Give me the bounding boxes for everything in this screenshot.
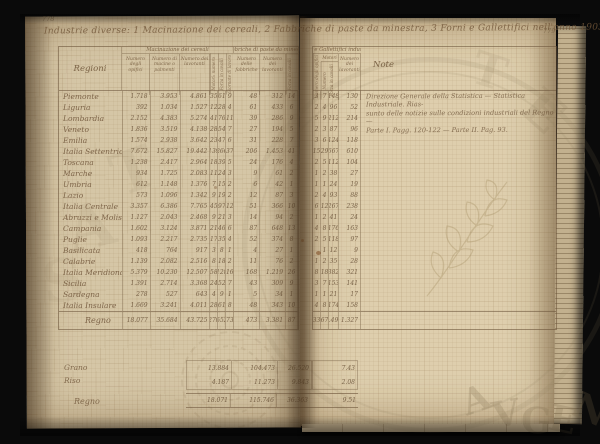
table-cell: 3.953 bbox=[151, 91, 181, 102]
table-cell: 8 bbox=[210, 256, 218, 267]
table-cell: 52 bbox=[234, 234, 260, 245]
table-cell: 46 bbox=[218, 223, 226, 234]
table-row: 1129 bbox=[313, 245, 556, 256]
left-table: RegioniMacinazione dei cerealiFabbriche … bbox=[58, 46, 299, 330]
table-cell: 392 bbox=[123, 102, 151, 113]
summary-cell: 9.51 bbox=[312, 393, 358, 408]
table-cell: 1.238 bbox=[123, 157, 151, 168]
table-cell: 35 bbox=[329, 256, 339, 267]
note-line: Direzione Generale della Statistica — St… bbox=[366, 91, 560, 109]
table-cell: 764 bbox=[151, 245, 181, 256]
table-cell: 24 bbox=[329, 179, 339, 190]
table-row: Marche9341.7252.083112439612 bbox=[59, 168, 298, 179]
table-cell: 41 bbox=[210, 113, 218, 124]
summary-right-box: 7.43 2.08 9.51 bbox=[312, 360, 358, 390]
table-cell: 14 bbox=[234, 212, 260, 223]
table-row: 2511897 bbox=[313, 234, 556, 245]
table-cell: 4 bbox=[226, 102, 234, 113]
note-cell bbox=[361, 146, 556, 157]
table-cell: 610 bbox=[339, 146, 361, 157]
table-row: 37153141 bbox=[313, 278, 556, 289]
table-cell: 2.082 bbox=[151, 256, 181, 267]
table-row: Lazio5731.0961.342919212873 bbox=[59, 190, 298, 201]
column-header: Numero delle fabbriche bbox=[234, 54, 260, 95]
table-cell: 1.453 bbox=[260, 146, 286, 157]
table-cell: 5.274 bbox=[181, 113, 211, 124]
region-label: Lombardia bbox=[59, 113, 123, 124]
table-row: Italia Centrale3.3576.3867.7654597125136… bbox=[59, 201, 298, 212]
table-cell: 54 bbox=[218, 124, 226, 135]
table-cell: 48 bbox=[234, 91, 260, 102]
table-cell: 5 bbox=[321, 157, 329, 168]
summary-right-values: 7.43 2.08 bbox=[312, 360, 358, 390]
table-cell: 552 bbox=[218, 312, 226, 329]
table-row: Italia Meridionale5.37910.23012.50758128… bbox=[59, 267, 298, 278]
region-label: Emilia bbox=[59, 135, 123, 146]
column-header: Numero dei lavoranti bbox=[180, 54, 210, 95]
table-row: 112419 bbox=[313, 179, 556, 190]
table-cell: 118 bbox=[329, 234, 339, 245]
note-cell bbox=[361, 212, 556, 223]
table-cell: 228 bbox=[260, 135, 286, 146]
table-cell: 1 bbox=[226, 289, 234, 300]
table-cell: 163 bbox=[339, 223, 361, 234]
table-cell: 3 bbox=[226, 168, 234, 179]
table-cell: 4.138 bbox=[181, 124, 211, 135]
table-cell: 168 bbox=[234, 267, 260, 278]
table-cell: 61 bbox=[218, 300, 226, 311]
table-cell: 27 bbox=[260, 245, 286, 256]
table-cell: 61 bbox=[260, 168, 286, 179]
header-columns: Forni e Gallettifici industrialiNumero d… bbox=[313, 47, 361, 90]
table-cell: 2.217 bbox=[151, 234, 181, 245]
table-cell: 12 bbox=[321, 201, 329, 212]
table-cell: 9 bbox=[234, 168, 260, 179]
table-cell: 2.043 bbox=[151, 212, 181, 223]
region-label: Umbria bbox=[59, 179, 123, 190]
table-row: Calabrie1.1392.0822.516818211762 bbox=[59, 256, 298, 267]
table-row: 25112104 bbox=[313, 157, 556, 168]
note-cell bbox=[361, 245, 556, 256]
table-cell: 58 bbox=[210, 267, 218, 278]
table-cell: 1 bbox=[321, 245, 329, 256]
table-cell: 12.507 bbox=[181, 267, 211, 278]
table-cell: 366 bbox=[260, 201, 286, 212]
region-label: Marche bbox=[59, 168, 123, 179]
table-row: 1529667610 bbox=[313, 146, 556, 157]
table-cell: 6 bbox=[234, 179, 260, 190]
table-cell: 1.836 bbox=[123, 124, 151, 135]
table-cell: 286 bbox=[260, 113, 286, 124]
table-cell: 124 bbox=[329, 135, 339, 146]
group-header-row: Forni e Gallettifici industriali bbox=[313, 47, 361, 54]
table-cell: 41 bbox=[329, 212, 339, 223]
note-cell bbox=[361, 256, 556, 267]
table-cell: 4 bbox=[210, 289, 218, 300]
table-cell: 4 bbox=[321, 102, 329, 113]
table-cell: 12 bbox=[210, 102, 218, 113]
table-cell: 18 bbox=[210, 157, 218, 168]
table-cell: 47 bbox=[218, 135, 226, 146]
column-header: Forza in cavalli bbox=[218, 54, 226, 95]
table-cell: 2 bbox=[226, 179, 234, 190]
region-label: Piemonte bbox=[59, 91, 123, 102]
column-header: Motori: numero bbox=[210, 54, 218, 95]
book-gutter-shadow bbox=[286, 16, 316, 428]
table-cell: 3.357 bbox=[123, 201, 151, 212]
region-label: Sardegna bbox=[59, 289, 123, 300]
table-cell: 2 bbox=[226, 190, 234, 201]
table-cell: 2.938 bbox=[151, 135, 181, 146]
region-label: Calabrie bbox=[59, 256, 123, 267]
table-cell: 130 bbox=[339, 91, 361, 102]
table-cell: 382 bbox=[329, 267, 339, 278]
table-cell: 2.964 bbox=[181, 157, 211, 168]
note-line: Parte I. Pagg. 120-122 — Parte II. Pag. … bbox=[366, 125, 560, 134]
table-cell: 42 bbox=[260, 179, 286, 190]
table-row: Abruzzi e Molise1.1272.0432.468921314942 bbox=[59, 212, 298, 223]
table-cell: 267 bbox=[329, 201, 339, 212]
table-cell: 5.379 bbox=[123, 267, 151, 278]
table-cell: 17 bbox=[339, 289, 361, 300]
table-cell: 6 bbox=[321, 135, 329, 146]
table-cell: 3.871 bbox=[181, 223, 211, 234]
table-row: 112117 bbox=[313, 289, 556, 300]
note-cell bbox=[361, 190, 556, 201]
table-cell: 87 bbox=[260, 190, 286, 201]
note-cell bbox=[361, 312, 556, 329]
region-label: Campania bbox=[59, 223, 123, 234]
table-cell: 2 bbox=[321, 256, 329, 267]
table-cell: 212 bbox=[329, 113, 339, 124]
table-cell: 7.672 bbox=[123, 146, 151, 157]
table-cell: 158 bbox=[339, 300, 361, 311]
table-cell: 9 bbox=[321, 113, 329, 124]
summary-row-label: Riso bbox=[64, 376, 80, 385]
region-label: Italia Settentrionale bbox=[59, 146, 123, 157]
table-cell: 1.327 bbox=[339, 312, 361, 329]
table-cell: 21 bbox=[218, 212, 226, 223]
table-cell: 24 bbox=[218, 168, 226, 179]
table-cell: 11 bbox=[234, 256, 260, 267]
table-cell: 35 bbox=[218, 234, 226, 245]
column-header: Numero dei lavoranti bbox=[260, 54, 286, 95]
table-row: Toscana1.2382.4172.96418395241764 bbox=[59, 157, 298, 168]
table-cell: 8 bbox=[226, 300, 234, 311]
summary-cell: 104.473 bbox=[232, 361, 278, 375]
table-cell: 643 bbox=[181, 289, 211, 300]
note-line: sunto delle notizie sulle condizioni ind… bbox=[366, 108, 560, 126]
region-label: Abruzzi e Molise bbox=[59, 212, 123, 223]
column-header: Forza in cavalli bbox=[329, 62, 338, 100]
table-cell: 1.669 bbox=[123, 300, 151, 311]
table-cell: 128 bbox=[218, 267, 226, 278]
region-label: Puglie bbox=[59, 234, 123, 245]
table-cell: 214 bbox=[339, 113, 361, 124]
table-cell: 16 bbox=[226, 267, 234, 278]
summary-cell: 18.071 bbox=[186, 394, 231, 407]
table-cell: 28 bbox=[339, 256, 361, 267]
table-cell: 94 bbox=[260, 212, 286, 223]
table-row: Umbria6121.1481.37671526421 bbox=[59, 179, 298, 190]
table-cell: 9 bbox=[339, 245, 361, 256]
table-cell: 27 bbox=[339, 168, 361, 179]
table-cell: 2.152 bbox=[123, 113, 151, 124]
region-label: Sicilia bbox=[59, 278, 123, 289]
note-cell bbox=[361, 223, 556, 234]
table-cell: 35.684 bbox=[151, 312, 181, 329]
table-cell: 23 bbox=[210, 135, 218, 146]
table-cell: 96 bbox=[339, 124, 361, 135]
table-cell: 1.718 bbox=[123, 91, 151, 102]
table-total-row: Regno18.07735.68443.725270552734733.3818… bbox=[59, 311, 298, 329]
table-cell: 1.139 bbox=[123, 256, 151, 267]
table-cell: 270 bbox=[210, 312, 218, 329]
table-cell: 88 bbox=[339, 190, 361, 201]
region-label: Lazio bbox=[59, 190, 123, 201]
table-cell: 321 bbox=[339, 267, 361, 278]
motori-columns: NumeroForza in cavalli bbox=[321, 62, 338, 100]
table-row: 612267238 bbox=[313, 201, 556, 212]
table-cell: 87 bbox=[329, 124, 339, 135]
column-header: Numero degli opifici bbox=[122, 54, 150, 95]
table-header: Forni e Gallettifici industrialiNumero d… bbox=[313, 47, 556, 91]
table-row: 123528 bbox=[313, 256, 556, 267]
table-cell: 278 bbox=[123, 289, 151, 300]
table-cell: 28 bbox=[218, 102, 226, 113]
table-cell: 1.034 bbox=[151, 102, 181, 113]
total-label: Regno bbox=[59, 312, 123, 329]
right-table: Forni e Gallettifici industrialiNumero d… bbox=[312, 46, 557, 330]
table-cell: 238 bbox=[339, 201, 361, 212]
table-cell: 2.714 bbox=[151, 278, 181, 289]
table-cell: 15 bbox=[218, 179, 226, 190]
table-cell: 3 bbox=[321, 124, 329, 135]
table-cell: 141 bbox=[339, 278, 361, 289]
table-cell: 24 bbox=[234, 157, 260, 168]
table-cell: 21 bbox=[210, 223, 218, 234]
note-cell bbox=[361, 201, 556, 212]
table-cell: 4 bbox=[234, 245, 260, 256]
table-row: 818382321 bbox=[313, 267, 556, 278]
table-row: Italia Settentrionale7.67215.82719.44213… bbox=[59, 146, 298, 157]
table-cell: 2.516 bbox=[181, 256, 211, 267]
note-cell bbox=[361, 179, 556, 190]
motori-group: MotoriNumeroForza in cavalli bbox=[321, 54, 339, 100]
table-row: 249388 bbox=[313, 190, 556, 201]
table-cell: 4.861 bbox=[181, 91, 211, 102]
table-cell: 5 bbox=[226, 157, 234, 168]
table-cell: 5 bbox=[321, 234, 329, 245]
table-cell: 39 bbox=[234, 113, 260, 124]
group-header-row: Macinazione dei cerealiFabbriche di past… bbox=[122, 47, 298, 54]
book-photo: TEAVGENATS 778 779 Industrie diverse: 1 … bbox=[0, 0, 600, 444]
table-cell: 266 bbox=[218, 146, 226, 157]
table-cell: 1.096 bbox=[151, 190, 181, 201]
column-header: Numero bbox=[321, 62, 329, 100]
table-cell: 2 bbox=[226, 256, 234, 267]
table-cell: 612 bbox=[123, 179, 151, 190]
table-cell: 3.124 bbox=[151, 223, 181, 234]
table-cell: 31 bbox=[234, 135, 260, 146]
table-cell: 10.230 bbox=[151, 267, 181, 278]
stain-speck bbox=[214, 186, 217, 189]
table-cell: 67 bbox=[321, 312, 329, 329]
table-cell: 1.574 bbox=[123, 135, 151, 146]
table-cell: 8 bbox=[218, 245, 226, 256]
note-cell bbox=[361, 278, 556, 289]
table-cell: 7 bbox=[226, 278, 234, 289]
table-cell: 19 bbox=[339, 179, 361, 190]
table-row: Liguria3921.0341.52712284614336 bbox=[59, 102, 298, 113]
group-header: Forni e Gallettifici industriali bbox=[313, 47, 361, 53]
table-cell: 15.827 bbox=[151, 146, 181, 157]
table-cell: 12 bbox=[329, 245, 339, 256]
table-cell: 343 bbox=[260, 300, 286, 311]
table-cell: 52 bbox=[339, 102, 361, 113]
table-cell: 21 bbox=[329, 289, 339, 300]
table-cell: 12 bbox=[234, 190, 260, 201]
table-cell: 29 bbox=[321, 146, 329, 157]
region-label: Italia Meridionale bbox=[59, 267, 123, 278]
table-cell: 174 bbox=[329, 300, 339, 311]
region-label: Italia Centrale bbox=[59, 201, 123, 212]
table-cell: 4.011 bbox=[181, 300, 211, 311]
table-cell: 43.725 bbox=[181, 312, 211, 329]
table-cell: 2.417 bbox=[151, 157, 181, 168]
subheader-row: Numero degli opificiNumero di macine o p… bbox=[122, 54, 298, 95]
table-cell: 5 bbox=[234, 289, 260, 300]
table-cell: 7 bbox=[226, 124, 234, 135]
table-cell: 374 bbox=[260, 234, 286, 245]
table-cell: 7 bbox=[321, 278, 329, 289]
table-cell: 12 bbox=[226, 201, 234, 212]
note-cell bbox=[361, 267, 556, 278]
note-cell bbox=[361, 168, 556, 179]
summary-block: Grano Riso Regno 13.884 104.473 26.520 4… bbox=[58, 360, 312, 416]
table-cell: 1.725 bbox=[151, 168, 181, 179]
table-cell: 73 bbox=[226, 312, 234, 329]
table-cell: 118 bbox=[339, 135, 361, 146]
table-cell: 1.602 bbox=[123, 223, 151, 234]
table-cell: 87 bbox=[234, 223, 260, 234]
table-row: 124124 bbox=[313, 212, 556, 223]
summary-row-label: Grano bbox=[64, 363, 87, 372]
summary-cell: 11.273 bbox=[232, 375, 278, 389]
table-cell: 17 bbox=[210, 234, 218, 245]
table-cell: 43 bbox=[234, 278, 260, 289]
table-cell: 104 bbox=[339, 157, 361, 168]
table-cell: 3.241 bbox=[151, 300, 181, 311]
table-cell: 1.376 bbox=[181, 179, 211, 190]
summary-cell: 4.187 bbox=[187, 375, 232, 389]
table-row: 48174158 bbox=[313, 300, 556, 311]
table-cell: 573 bbox=[123, 190, 151, 201]
note-cell bbox=[361, 289, 556, 300]
table-cell: 3.519 bbox=[151, 124, 181, 135]
table-cell: 4 bbox=[226, 234, 234, 245]
table-cell: 8 bbox=[321, 300, 329, 311]
summary-cell: 13.884 bbox=[187, 361, 232, 375]
note-cell bbox=[361, 300, 556, 311]
table-cell: 1 bbox=[321, 289, 329, 300]
table-row: Lombardia2.1524.3835.274417611392869 bbox=[59, 113, 298, 124]
table-cell: 11 bbox=[210, 168, 218, 179]
table-cell: 24 bbox=[339, 212, 361, 223]
table-cell: 18 bbox=[218, 256, 226, 267]
table-cell: 1.093 bbox=[123, 234, 151, 245]
stain-speck bbox=[316, 251, 321, 255]
table-cell: 9 bbox=[218, 289, 226, 300]
table-cell: 194 bbox=[260, 124, 286, 135]
table-row: Veneto1.8363.5194.13828547271945 bbox=[59, 124, 298, 135]
column-header: Giornate di lavoro bbox=[226, 54, 234, 95]
note-cell bbox=[361, 234, 556, 245]
table-cell: 1.127 bbox=[123, 212, 151, 223]
table-cell: 18.077 bbox=[123, 312, 151, 329]
region-label: Toscana bbox=[59, 157, 123, 168]
table-cell: 648 bbox=[260, 223, 286, 234]
table-cell: 433 bbox=[260, 102, 286, 113]
table-cell: 6 bbox=[226, 135, 234, 146]
table-cell: 28 bbox=[210, 300, 218, 311]
table-cell: 2 bbox=[321, 168, 329, 179]
table-cell: 9 bbox=[210, 212, 218, 223]
region-label: Liguria bbox=[59, 102, 123, 113]
table-row: 123827 bbox=[313, 168, 556, 179]
table-row: Emilia1.5742.9383.64223476312287 bbox=[59, 135, 298, 146]
table-cell: 2.735 bbox=[181, 234, 211, 245]
table-cell: 11 bbox=[226, 113, 234, 124]
table-cell: 52 bbox=[218, 278, 226, 289]
table-cell: 93 bbox=[329, 190, 339, 201]
region-column-header: Regioni bbox=[59, 47, 122, 90]
table-cell: 8 bbox=[321, 223, 329, 234]
table-cell: 19.442 bbox=[181, 146, 211, 157]
summary-cell: 7.43 bbox=[313, 361, 357, 375]
table-cell: 3.368 bbox=[181, 278, 211, 289]
table-cell: 24 bbox=[210, 278, 218, 289]
note-cell bbox=[361, 157, 556, 168]
table-cell: 97 bbox=[339, 234, 361, 245]
table-cell: 27 bbox=[234, 124, 260, 135]
region-label: Italia Insulare bbox=[59, 300, 123, 311]
table-row: Sardegna2785276434915341 bbox=[59, 289, 298, 300]
table-row: 36124118 bbox=[313, 135, 556, 146]
table-cell: 6 bbox=[226, 223, 234, 234]
table-cell: 39 bbox=[218, 157, 226, 168]
table-cell: 1 bbox=[226, 245, 234, 256]
table-cell: 139 bbox=[210, 146, 218, 157]
table-cell: 34 bbox=[260, 289, 286, 300]
table-cell: 28 bbox=[210, 124, 218, 135]
table-cell: 153 bbox=[329, 278, 339, 289]
table-cell: 6.386 bbox=[151, 201, 181, 212]
table-cell: 473 bbox=[234, 312, 260, 329]
table-cell: 9 bbox=[210, 190, 218, 201]
region-label: Basilicata bbox=[59, 245, 123, 256]
table-cell: 917 bbox=[181, 245, 211, 256]
table-cell: 1.490 bbox=[329, 312, 339, 329]
table-total-row: 33671.4901.327 bbox=[313, 311, 556, 329]
table-cell: 3.381 bbox=[260, 312, 286, 329]
table-row: Campania1.6023.1243.871214668764813 bbox=[59, 223, 298, 234]
summary-cell: 2.08 bbox=[313, 375, 357, 389]
table-cell: 3.642 bbox=[181, 135, 211, 146]
table-body: Piemonte1.7183.9534.861356194831214Ligur… bbox=[59, 91, 298, 311]
table-cell: 1.219 bbox=[260, 267, 286, 278]
table-row: 48176163 bbox=[313, 223, 556, 234]
